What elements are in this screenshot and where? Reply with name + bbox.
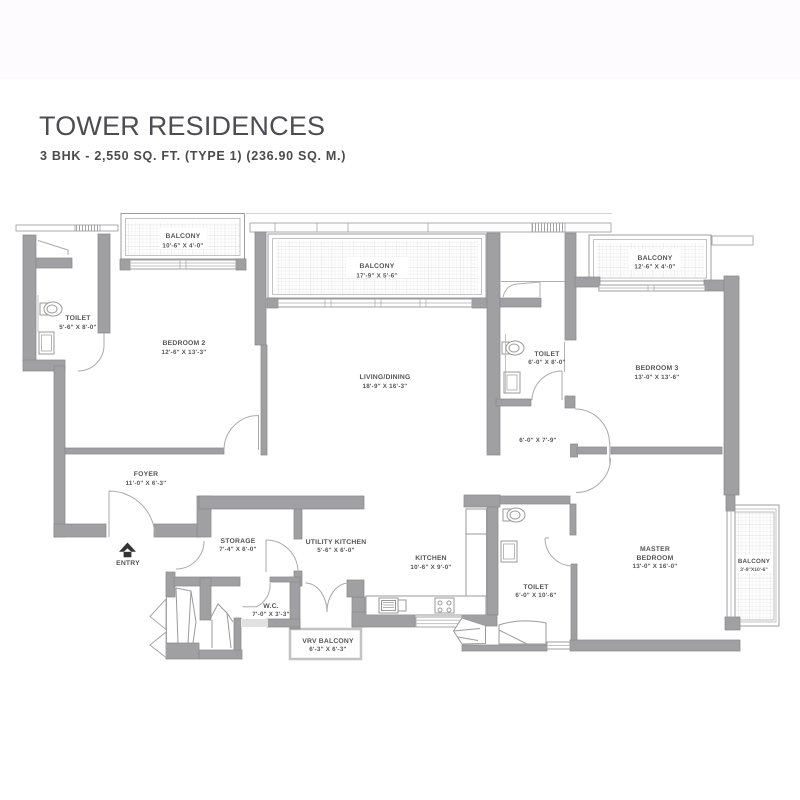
- svg-text:W.C.: W.C.: [263, 603, 279, 610]
- svg-text:13'-0" X 16'-0": 13'-0" X 16'-0": [633, 563, 678, 570]
- svg-text:13'-0" X 13'-6": 13'-0" X 13'-6": [635, 374, 680, 381]
- svg-text:5'-6" X 6'-0": 5'-6" X 6'-0": [317, 547, 355, 554]
- svg-text:18'-9" X 16'-3": 18'-9" X 16'-3": [363, 383, 408, 390]
- svg-text:10'-6" X 4'-0": 10'-6" X 4'-0": [162, 243, 203, 250]
- svg-text:6'-3" X 6'-3": 6'-3" X 6'-3": [309, 646, 347, 653]
- svg-text:10'-6" X 9'-0": 10'-6" X 9'-0": [410, 564, 451, 571]
- svg-text:BEDROOM 3: BEDROOM 3: [636, 365, 679, 372]
- svg-text:UTILITY KITCHEN: UTILITY KITCHEN: [306, 539, 367, 546]
- svg-text:17'-9" X 5'-6": 17'-9" X 5'-6": [356, 273, 397, 280]
- svg-text:TOILET: TOILET: [523, 584, 549, 591]
- svg-text:TOILET: TOILET: [534, 351, 560, 358]
- svg-text:BALCONY: BALCONY: [637, 255, 672, 262]
- svg-text:LIVING/DINING: LIVING/DINING: [360, 374, 411, 381]
- svg-text:6'-0" X 7'-9": 6'-0" X 7'-9": [519, 437, 557, 444]
- svg-text:3'-9"X10'-6": 3'-9"X10'-6": [740, 567, 768, 573]
- svg-text:VRV BALCONY: VRV BALCONY: [302, 638, 354, 645]
- svg-text:5'-6" X 8'-0": 5'-6" X 8'-0": [59, 324, 97, 331]
- svg-text:TOILET: TOILET: [65, 315, 91, 322]
- svg-text:6'-0" X 8'-0": 6'-0" X 8'-0": [528, 359, 566, 366]
- svg-text:MASTER: MASTER: [640, 546, 670, 553]
- svg-text:BEDROOM 2: BEDROOM 2: [163, 340, 206, 347]
- svg-text:11'-0" X 6'-3": 11'-0" X 6'-3": [126, 480, 167, 487]
- svg-text:BALCONY: BALCONY: [359, 263, 394, 270]
- svg-text:6'-0" X 10'-6": 6'-0" X 10'-6": [515, 592, 556, 599]
- svg-text:12'-6" X 13'-3": 12'-6" X 13'-3": [162, 349, 207, 356]
- svg-text:FOYER: FOYER: [134, 471, 158, 478]
- svg-text:7'-0" X 3'-3": 7'-0" X 3'-3": [252, 611, 290, 618]
- svg-text:7'-4" X 6'-0": 7'-4" X 6'-0": [219, 546, 257, 553]
- svg-text:STORAGE: STORAGE: [221, 538, 256, 545]
- svg-text:12'-6" X 4'-0": 12'-6" X 4'-0": [634, 264, 675, 271]
- svg-text:ENTRY: ENTRY: [116, 560, 140, 567]
- svg-text:KITCHEN: KITCHEN: [415, 555, 447, 562]
- svg-text:BALCONY: BALCONY: [738, 558, 771, 565]
- svg-text:BEDROOM: BEDROOM: [637, 555, 674, 562]
- svg-text:BALCONY: BALCONY: [165, 233, 200, 240]
